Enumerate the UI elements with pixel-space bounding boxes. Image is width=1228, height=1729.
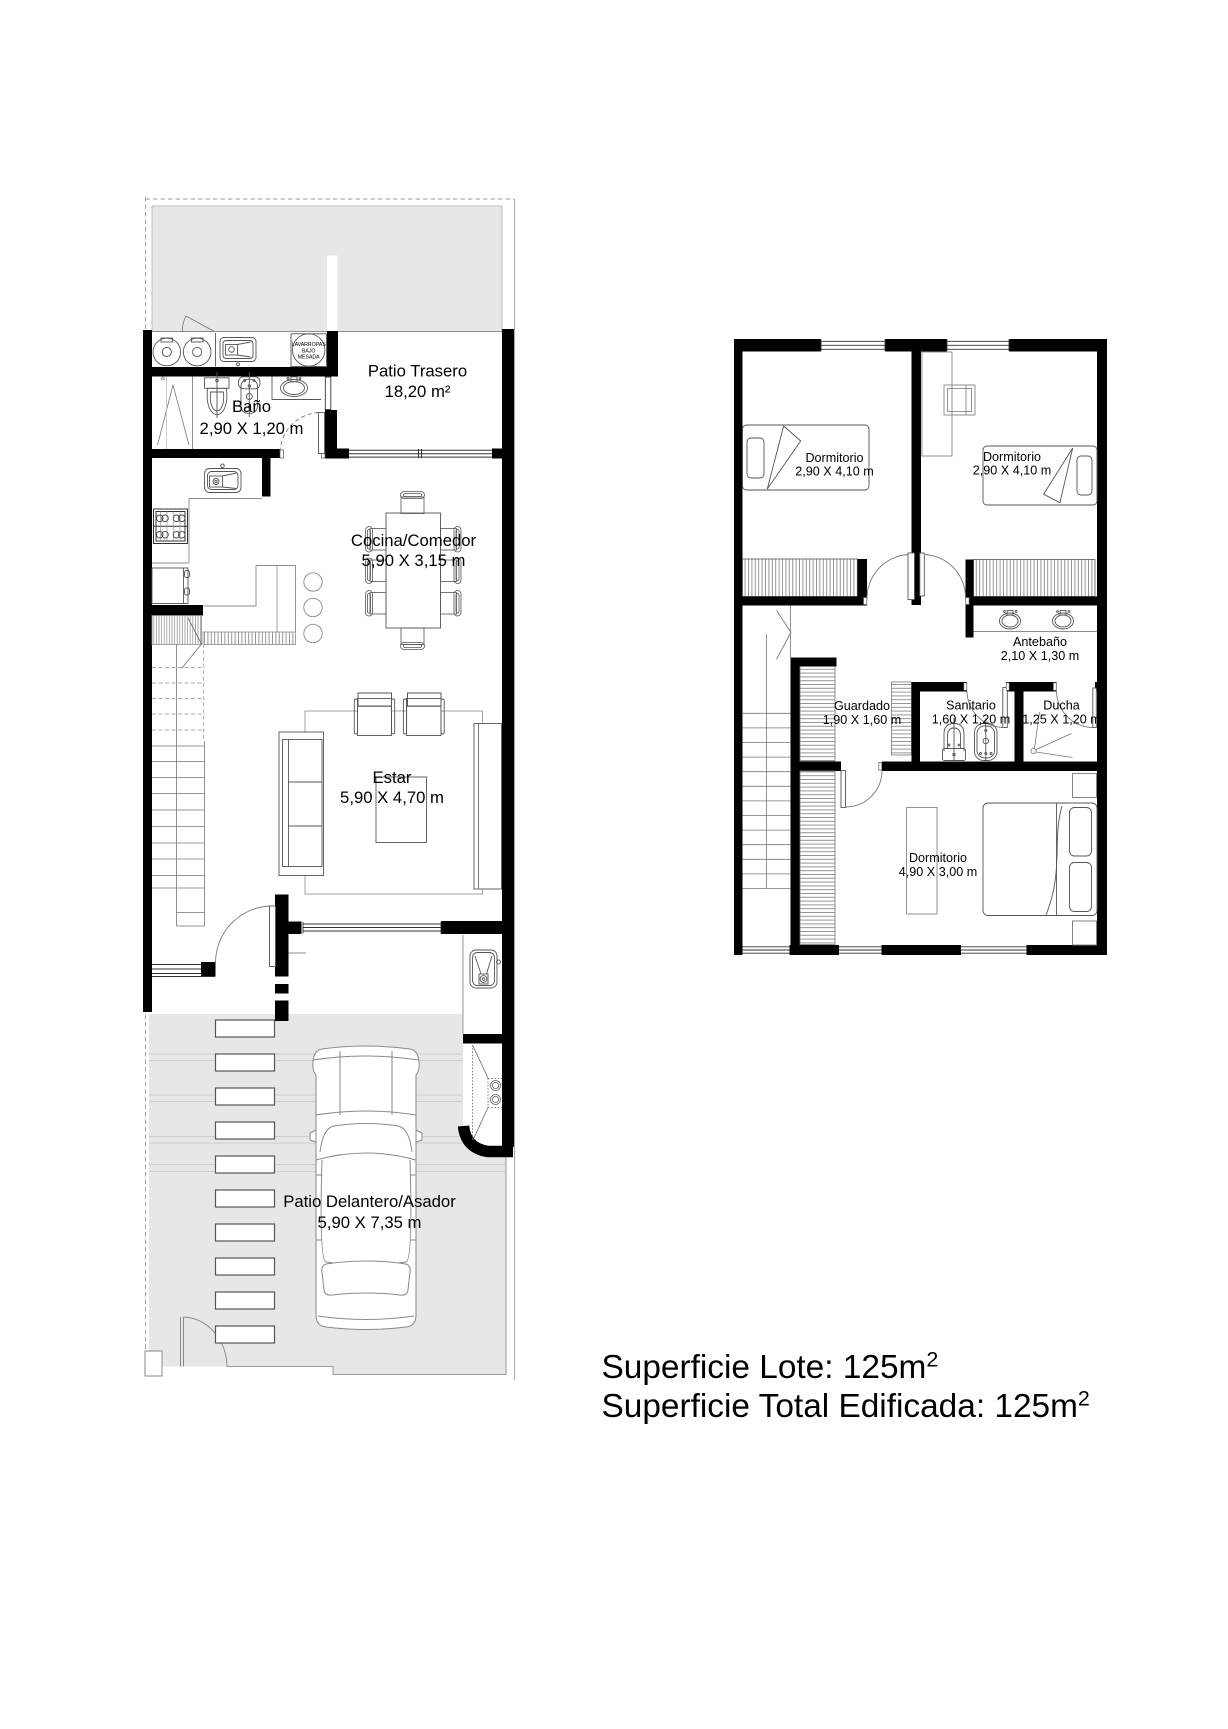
- svg-text:Antebaño: Antebaño: [1013, 635, 1067, 649]
- svg-text:Dormitorio: Dormitorio: [983, 450, 1041, 464]
- svg-text:1,60 X 1,20 m: 1,60 X 1,20 m: [932, 712, 1010, 726]
- svg-text:18,20 m²: 18,20 m²: [385, 382, 451, 401]
- svg-text:Ducha: Ducha: [1043, 699, 1079, 713]
- svg-text:4,90 X 3,00 m: 4,90 X 3,00 m: [899, 865, 977, 879]
- svg-text:Baño: Baño: [232, 397, 271, 416]
- svg-text:2,90 X 4,10 m: 2,90 X 4,10 m: [795, 465, 873, 479]
- svg-text:Patio Trasero: Patio Trasero: [368, 362, 467, 381]
- svg-text:2,90 X 1,20 m: 2,90 X 1,20 m: [200, 419, 304, 438]
- svg-text:LAVARROPAS: LAVARROPAS: [292, 342, 327, 348]
- svg-text:Patio Delantero/Asador: Patio Delantero/Asador: [283, 1192, 456, 1211]
- svg-text:5,90 X 7,35 m: 5,90 X 7,35 m: [318, 1213, 422, 1232]
- svg-text:1,25 X 1,20 m: 1,25 X 1,20 m: [1022, 712, 1100, 726]
- svg-text:Dormitorio: Dormitorio: [909, 851, 967, 865]
- svg-text:1,90 X 1,60 m: 1,90 X 1,60 m: [823, 713, 901, 727]
- svg-text:2,10 X 1,30 m: 2,10 X 1,30 m: [1001, 649, 1079, 663]
- svg-text:2,90 X 4,10 m: 2,90 X 4,10 m: [973, 464, 1051, 478]
- svg-text:5,90 X 3,15 m: 5,90 X 3,15 m: [362, 551, 466, 570]
- svg-text:Superficie Total Edificada: 12: Superficie Total Edificada: 125m2: [602, 1387, 1090, 1426]
- svg-text:BAJO: BAJO: [302, 348, 316, 354]
- svg-text:Cocina/Comedor: Cocina/Comedor: [351, 531, 477, 550]
- svg-text:Guardado: Guardado: [834, 699, 890, 713]
- svg-text:Estar: Estar: [373, 768, 412, 787]
- svg-text:Sanitario: Sanitario: [946, 699, 996, 713]
- svg-text:MESADA: MESADA: [298, 355, 320, 361]
- svg-text:Dormitorio: Dormitorio: [805, 451, 863, 465]
- svg-text:5,90 X 4,70 m: 5,90 X 4,70 m: [340, 788, 444, 807]
- svg-text:Superficie Lote: 125m2: Superficie Lote: 125m2: [602, 1348, 939, 1387]
